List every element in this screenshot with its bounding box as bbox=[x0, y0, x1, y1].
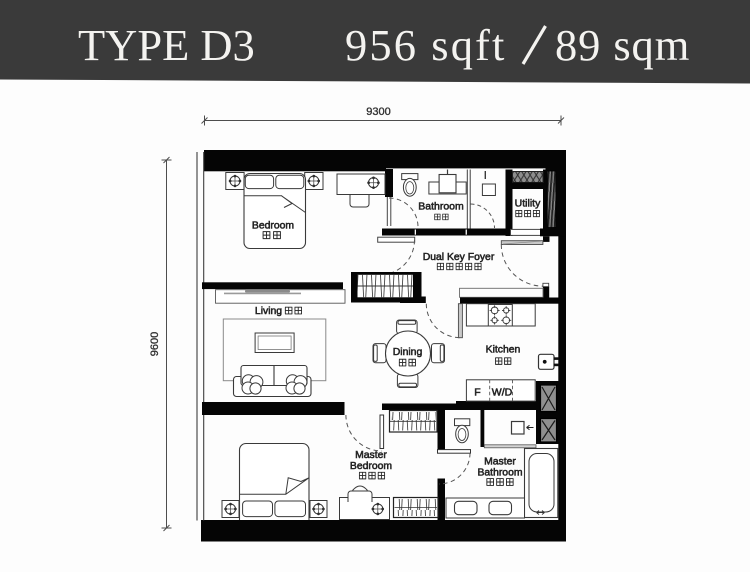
svg-text:Utility: Utility bbox=[515, 197, 541, 209]
svg-text:Bedroom: Bedroom bbox=[252, 221, 294, 232]
svg-text:9300: 9300 bbox=[366, 106, 390, 118]
svg-text:Master: Master bbox=[355, 450, 387, 461]
svg-text:F: F bbox=[474, 386, 480, 398]
svg-text:Living: Living bbox=[255, 306, 282, 317]
svg-text:W/D: W/D bbox=[492, 386, 513, 398]
svg-text:Bedroom: Bedroom bbox=[350, 461, 392, 472]
svg-text:Dual Key Foyer: Dual Key Foyer bbox=[423, 252, 495, 263]
svg-text:89 sqm: 89 sqm bbox=[555, 20, 690, 70]
svg-text:956 sqft: 956 sqft bbox=[345, 20, 506, 70]
svg-text:TYPE D3: TYPE D3 bbox=[78, 20, 255, 70]
svg-text:Bathroom: Bathroom bbox=[418, 200, 464, 212]
svg-text:9600: 9600 bbox=[149, 332, 161, 356]
svg-text:Master: Master bbox=[484, 457, 516, 468]
svg-text:Kitchen: Kitchen bbox=[486, 344, 521, 355]
svg-text:Bathroom: Bathroom bbox=[477, 468, 522, 479]
svg-text:Dining: Dining bbox=[393, 347, 423, 358]
